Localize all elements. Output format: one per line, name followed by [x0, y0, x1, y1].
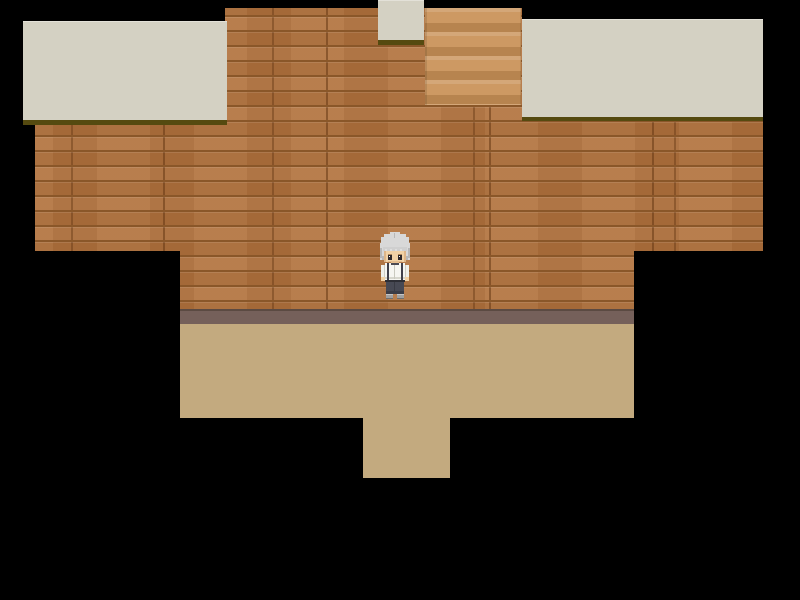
table-top[interactable]: [378, 0, 424, 45]
tan-floor-exit[interactable]: [363, 418, 450, 478]
game-viewport: [0, 0, 800, 600]
player-character-sprite: [378, 232, 412, 300]
player-character: [378, 232, 412, 300]
stairs[interactable]: [425, 8, 521, 105]
table-right[interactable]: [522, 19, 763, 121]
table-left[interactable]: [23, 21, 227, 125]
tan-floor[interactable]: [180, 324, 634, 418]
lower-wall-base: [180, 309, 634, 324]
